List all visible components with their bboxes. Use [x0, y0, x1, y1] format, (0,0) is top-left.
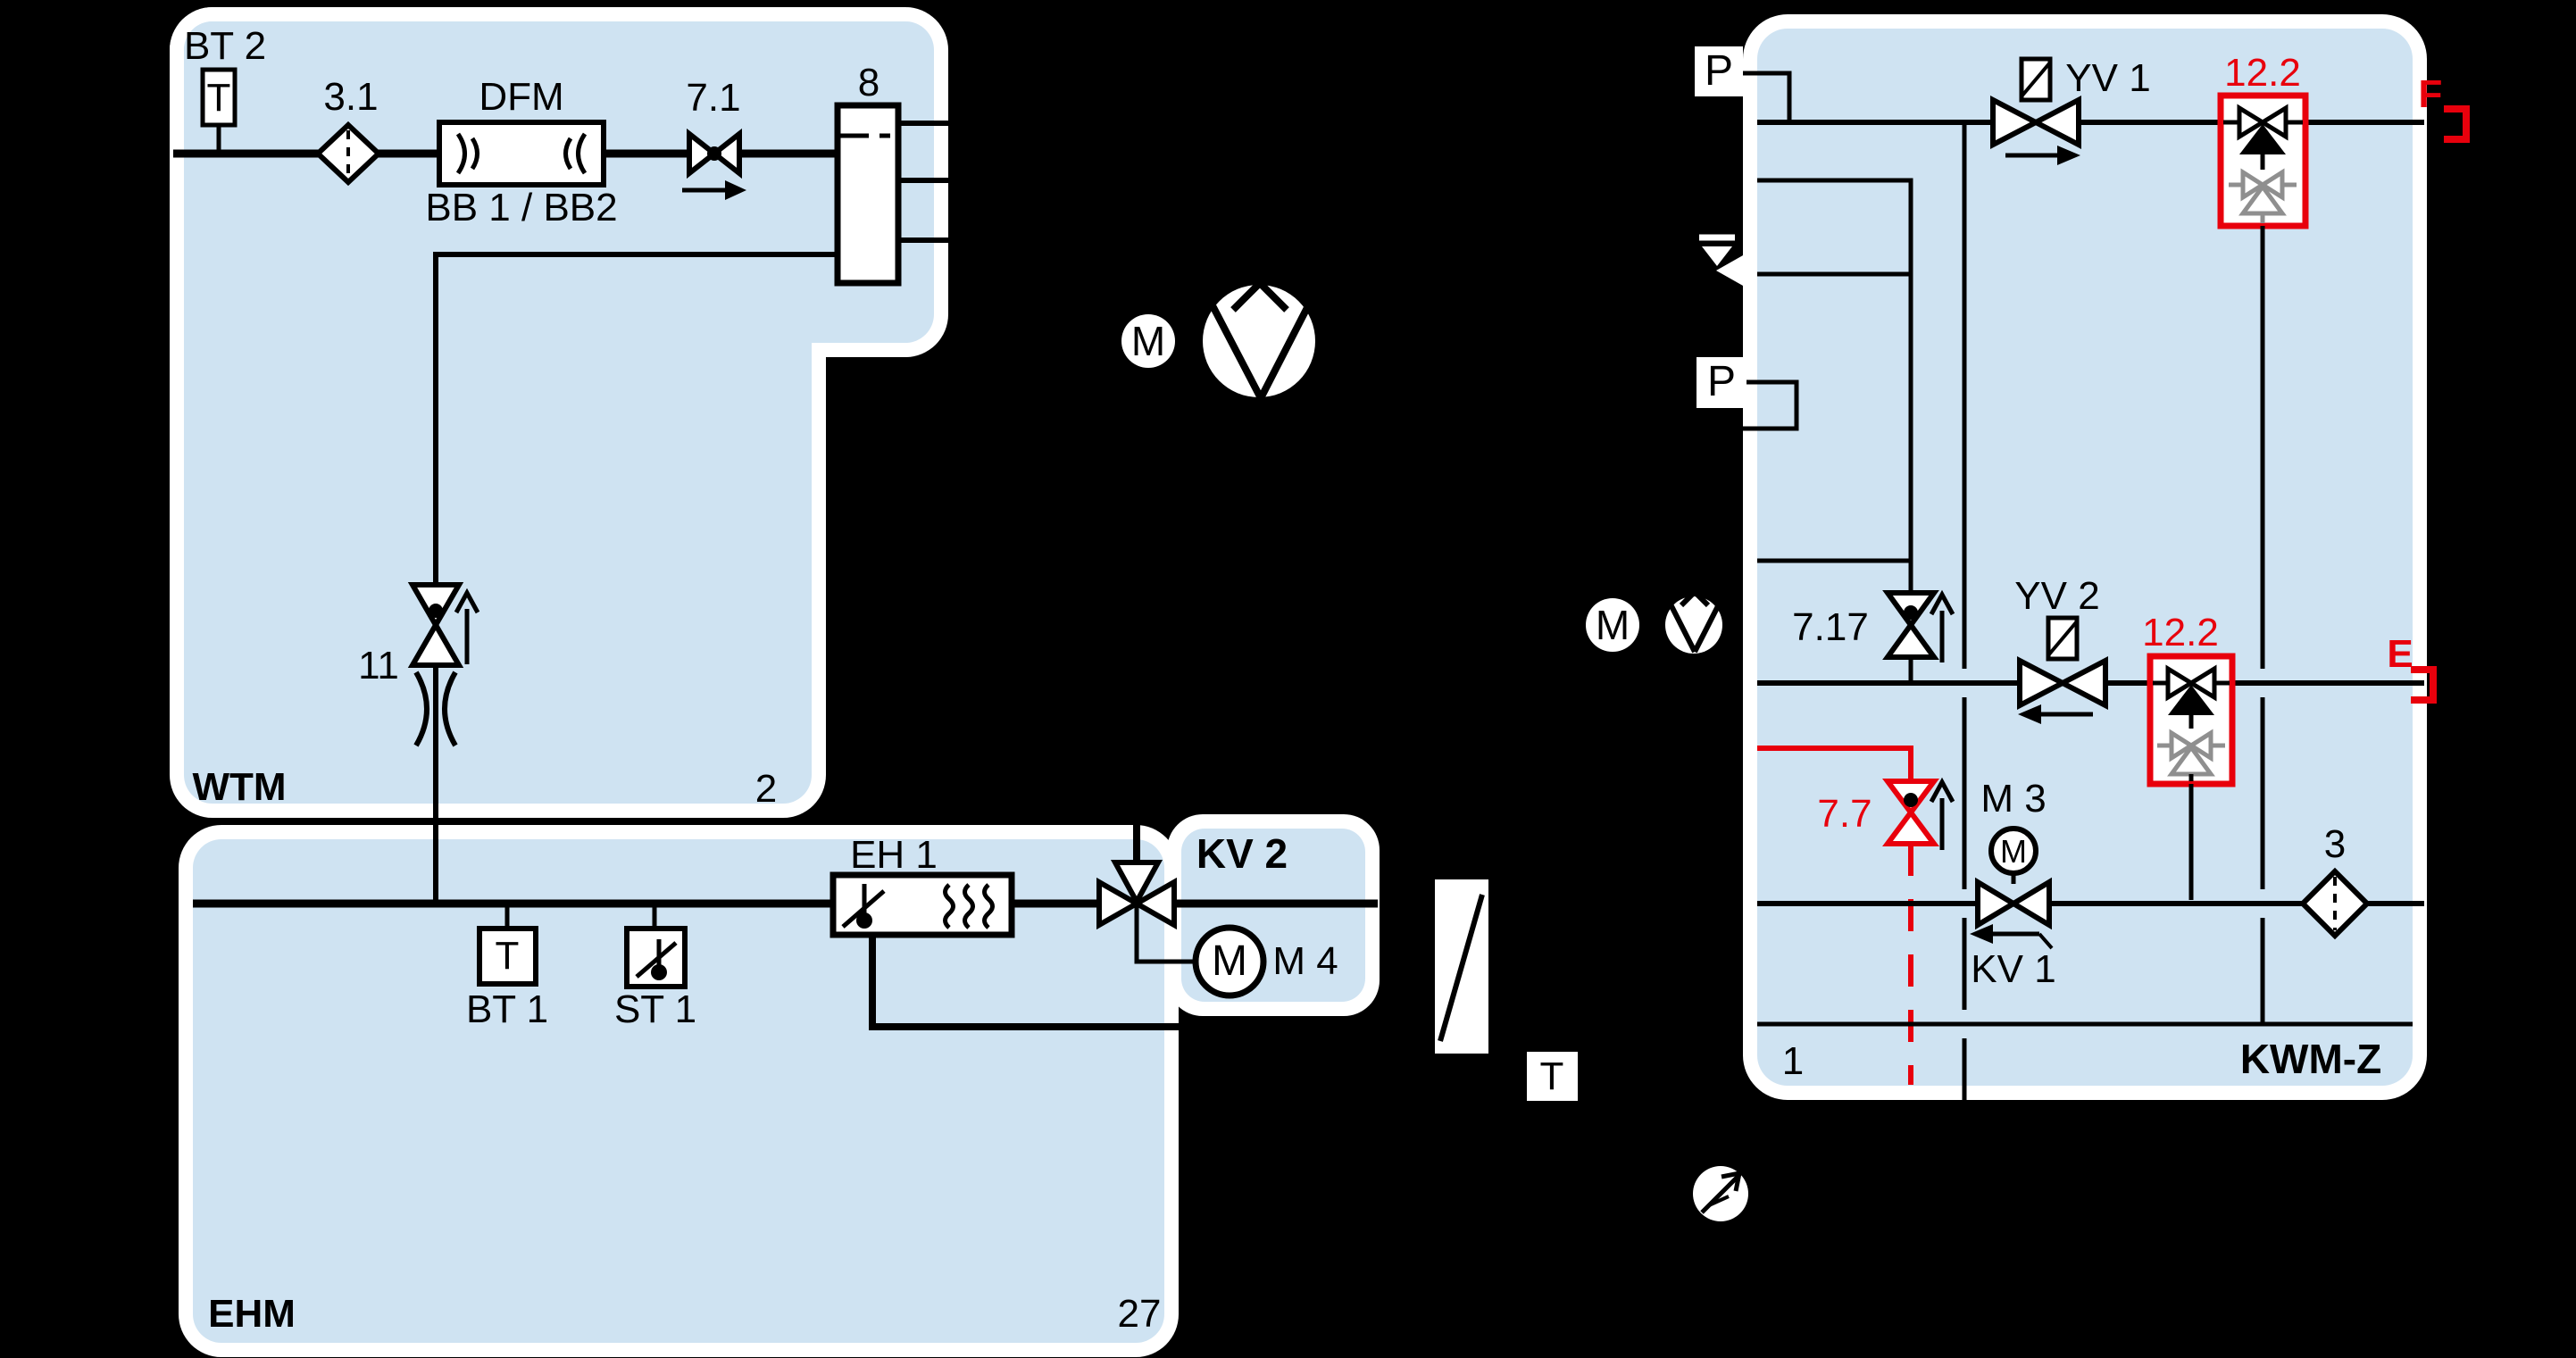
label-m4-letter: M [1212, 940, 1247, 983]
label-2: 2 [755, 770, 777, 809]
label-st1: ST 1 [614, 990, 696, 1029]
flow-direction-arrow [1693, 1166, 1748, 1221]
label-8: 8 [858, 63, 880, 103]
label-bt1: BT 1 [466, 990, 548, 1029]
twin-valve-12-2-top [2221, 96, 2305, 226]
label-pump-motor: M [1131, 321, 1165, 362]
filter-3 [2303, 871, 2367, 936]
label-ehm: EHM [208, 1295, 296, 1334]
label-12-2-bottom: 12.2 [2142, 613, 2219, 653]
three-way-valve [1099, 821, 1196, 962]
valve-7-1 [682, 134, 746, 200]
schematic-stage: BT 2 T 3.1 DFM BB 1 / BB2 7.1 8 11 WTM 2… [0, 0, 2576, 1358]
label-p1-letter: P [1705, 50, 1733, 93]
label-m3-letter: M [2000, 836, 2027, 868]
flow-meter-dfm [439, 122, 604, 185]
wtm-return-pipe [436, 254, 838, 900]
label-e: E [2387, 635, 2413, 674]
separator [1435, 879, 1488, 1054]
label-11: 11 [358, 646, 399, 686]
pump-small [1665, 592, 1722, 654]
port-marker-f [2444, 109, 2466, 139]
twin-valve-12-2-bottom [2150, 656, 2232, 900]
label-eh1: EH 1 [850, 836, 938, 875]
label-yv1: YV 1 [2065, 59, 2150, 98]
pump-main [1203, 283, 1315, 398]
label-12-2-top: 12.2 [2224, 54, 2301, 93]
label-bb1-bb2: BB 1 / BB2 [425, 188, 617, 228]
label-p2-letter: P [1707, 361, 1736, 404]
label-bt1-letter: T [496, 937, 520, 976]
label-kv2: KV 2 [1196, 833, 1288, 874]
label-m3: M 3 [1980, 779, 2046, 819]
valve-7-17 [1888, 593, 1953, 662]
drain-funnel [1699, 237, 1743, 286]
label-t-mid: T [1540, 1057, 1564, 1096]
label-27: 27 [1118, 1295, 1162, 1334]
label-motor-mid: M [1596, 604, 1630, 646]
label-bt2-letter: T [207, 79, 231, 118]
label-1: 1 [1782, 1042, 1804, 1081]
sensor-st1 [627, 907, 685, 987]
label-7-7: 7.7 [1817, 795, 1872, 834]
drain-lines [1757, 180, 1911, 274]
label-bt2: BT 2 [184, 27, 266, 66]
label-kv1: KV 1 [1971, 950, 2055, 989]
valve-yv2 [2018, 618, 2105, 724]
label-3-1: 3.1 [323, 78, 378, 117]
valve-11 [413, 585, 478, 665]
label-kwmz: KWM-Z [2240, 1038, 2381, 1079]
label-3: 3 [2324, 825, 2346, 864]
filter-3-1 [318, 125, 379, 182]
label-7-1: 7.1 [686, 79, 740, 118]
label-f: F [2419, 75, 2443, 114]
valve-7-7 [1888, 781, 1953, 850]
heat-exchanger-8 [838, 105, 948, 283]
label-wtm: WTM [192, 768, 286, 807]
label-7-17: 7.17 [1792, 608, 1869, 647]
label-yv2: YV 2 [2014, 577, 2099, 616]
label-m4: M 4 [1272, 942, 1338, 981]
label-dfm: DFM [479, 78, 563, 117]
